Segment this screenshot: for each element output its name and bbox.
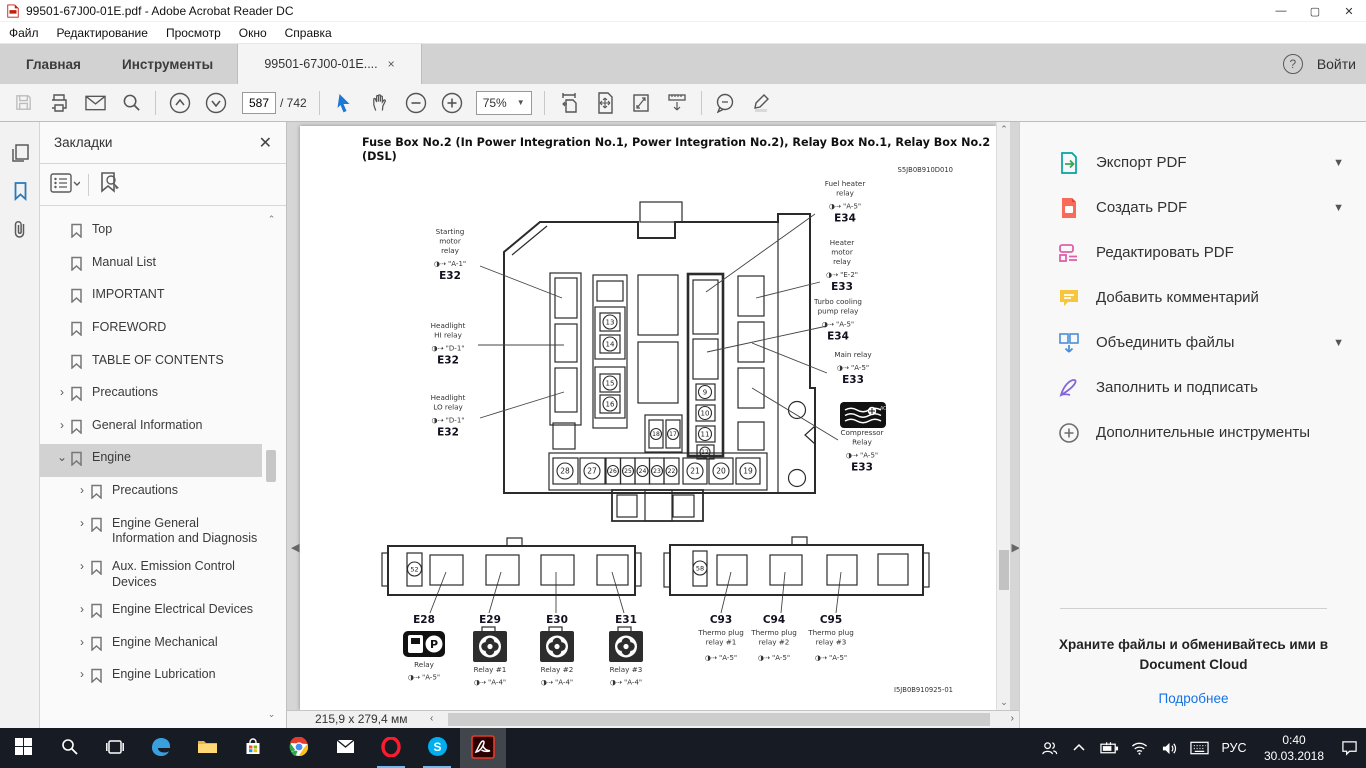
svg-text:◑⇢ "A-5": ◑⇢ "A-5" <box>705 654 737 662</box>
people-icon[interactable] <box>1036 728 1062 768</box>
find-current-bookmark-icon <box>97 171 123 195</box>
svg-text:◑⇢ "A-5": ◑⇢ "A-5" <box>408 674 440 682</box>
bookmark-item[interactable]: ›General Information <box>40 412 262 445</box>
svg-text:E32: E32 <box>437 355 459 367</box>
wifi-icon[interactable] <box>1126 728 1152 768</box>
highlight-button[interactable] <box>747 88 777 118</box>
document-cloud-promo: Храните файлы и обменивайтесь ими в Docu… <box>1020 608 1366 707</box>
bookmark-item-label: Engine Mechanical <box>108 635 258 651</box>
file-explorer-icon <box>197 738 218 758</box>
svg-text:22: 22 <box>668 468 676 475</box>
create-pdf-icon <box>1056 195 1082 221</box>
svg-text:19: 19 <box>743 467 753 476</box>
chevron-right-icon[interactable]: › <box>54 385 70 400</box>
svg-text:12: 12 <box>701 449 709 456</box>
touch-keyboard-icon[interactable] <box>1186 728 1212 768</box>
acrobat-taskbar-button[interactable] <box>460 728 506 768</box>
svg-text:E33: E33 <box>842 374 864 386</box>
tool-item-label: Экспорт PDF <box>1082 154 1333 171</box>
svg-text:58: 58 <box>696 564 704 572</box>
next-page-button[interactable] <box>201 88 231 118</box>
bookmark-flag-icon <box>70 320 88 341</box>
start-button[interactable] <box>0 728 46 768</box>
bookmark-flag-icon <box>90 635 108 656</box>
fuel-pump-relay-icon: P <box>403 631 445 657</box>
svg-text:16: 16 <box>606 401 615 409</box>
fill-sign-icon <box>1056 375 1082 401</box>
bookmark-item[interactable]: ›Engine General Information and Diagnosi… <box>40 510 262 553</box>
bookmark-item-label: Engine General Information and Diagnosis <box>108 516 258 547</box>
chrome-icon <box>289 737 309 760</box>
svg-text:17: 17 <box>669 431 677 438</box>
zoom-out-button[interactable] <box>401 88 431 118</box>
chevron-right-icon[interactable]: › <box>74 667 90 682</box>
svg-text:E32: E32 <box>437 427 459 439</box>
start-icon <box>15 738 32 758</box>
svg-text:Relay #3: Relay #3 <box>610 665 643 674</box>
chevron-right-icon[interactable]: › <box>74 602 90 617</box>
more-tools-icon <box>1056 420 1082 446</box>
show-hidden-icons-chevron[interactable] <box>1066 728 1092 768</box>
svg-text:Relay #2: Relay #2 <box>541 665 574 674</box>
svg-text:◑⇢ "A-4": ◑⇢ "A-4" <box>610 679 642 687</box>
previous-page-arrow[interactable]: ◀ <box>291 541 299 554</box>
scroll-right-icon[interactable]: › <box>1011 713 1014 724</box>
ruler-icon <box>666 92 688 114</box>
full-screen-button[interactable] <box>626 88 656 118</box>
svg-text:23: 23 <box>653 468 661 475</box>
svg-text:E34: E34 <box>827 331 849 343</box>
tool-item-export-pdf[interactable]: Экспорт PDF▼ <box>1020 140 1366 185</box>
chevron-down-icon[interactable]: ▼ <box>1333 337 1344 349</box>
svg-text:C93: C93 <box>710 614 732 626</box>
task-view-taskbar-button[interactable] <box>92 728 138 768</box>
acrobat-reader-window: 99501-67J00-01E.pdf - Adobe Acrobat Read… <box>0 0 1366 768</box>
svg-text:20: 20 <box>716 467 726 476</box>
edge-icon <box>150 736 172 761</box>
combine-files-icon <box>1056 330 1082 356</box>
svg-text:13: 13 <box>606 319 615 327</box>
page-thumbnails-icon <box>10 143 30 163</box>
expand-current-bookmark-button[interactable] <box>97 171 123 198</box>
bookmarks-tree: TopManual ListIMPORTANTFOREWORDTABLE OF … <box>40 208 262 728</box>
page-scrolling-icon <box>559 92 579 114</box>
language-indicator[interactable]: РУС <box>1216 741 1252 755</box>
svg-text:Relay: Relay <box>852 438 872 447</box>
bookmark-item-label: IMPORTANT <box>88 287 258 303</box>
svg-text:E32: E32 <box>439 270 461 282</box>
svg-text:Relay #1: Relay #1 <box>474 665 507 674</box>
svg-text:26: 26 <box>609 468 617 475</box>
tool-item-add-comment[interactable]: Добавить комментарий <box>1020 275 1366 320</box>
bookmark-icon <box>12 181 29 201</box>
help-icon[interactable]: ? <box>1283 54 1303 74</box>
tool-item-edit-pdf[interactable]: Редактировать PDF <box>1020 230 1366 275</box>
bookmark-flag-icon <box>90 483 108 504</box>
cloud-promo-line1: Храните файлы и обменивайтесь ими в <box>1059 637 1328 652</box>
full-screen-icon <box>631 92 651 114</box>
svg-text:relay #2: relay #2 <box>759 638 790 647</box>
scroll-up-icon[interactable]: ⌃ <box>265 214 278 225</box>
bookmark-item[interactable]: ›Aux. Emission Control Devices <box>40 553 262 596</box>
hand-icon <box>370 93 389 113</box>
scroll-up-icon[interactable]: ⌃ <box>997 124 1011 135</box>
svg-text:Heater: Heater <box>830 238 854 247</box>
skype-icon: S <box>427 736 448 760</box>
vertical-scroll-thumb[interactable] <box>999 550 1009 590</box>
main-toolbar: / 742 75%▼ <box>0 84 1366 122</box>
chevron-right-icon[interactable]: › <box>74 516 90 531</box>
cloud-promo-line2: Document Cloud <box>1140 657 1248 672</box>
clock[interactable]: 0:40 30.03.2018 <box>1256 732 1332 764</box>
hand-tool-button[interactable] <box>365 88 395 118</box>
tab-document-label: 99501-67J00-01E.... <box>264 57 377 71</box>
tool-item-label: Дополнительные инструменты <box>1082 424 1344 441</box>
svg-text:9: 9 <box>703 389 707 397</box>
svg-text:relay #3: relay #3 <box>816 638 847 647</box>
learn-more-link[interactable]: Подробнее <box>1020 691 1366 706</box>
previous-page-button[interactable] <box>165 88 195 118</box>
tool-item-more-tools[interactable]: Дополнительные инструменты <box>1020 410 1366 455</box>
bookmark-item-label: FOREWORD <box>88 320 258 336</box>
fan-relay-icons <box>473 627 643 662</box>
opera-taskbar-button[interactable] <box>368 728 414 768</box>
options-list-icon <box>50 172 80 194</box>
bookmark-flag-icon <box>70 353 88 374</box>
svg-text:Turbo cooling: Turbo cooling <box>813 297 862 306</box>
bookmark-item[interactable]: ⌄Engine <box>40 444 262 477</box>
tray-date: 30.03.2018 <box>1256 748 1332 764</box>
svg-text:◑⇢ "A-4": ◑⇢ "A-4" <box>474 679 506 687</box>
svg-text:Compressor: Compressor <box>840 428 883 437</box>
menu-item-0[interactable]: Файл <box>0 26 48 40</box>
attachments-button[interactable] <box>0 210 40 248</box>
document-status-bar: 215,9 x 279,4 мм ‹ › <box>287 710 1019 728</box>
acrobat-icon <box>471 735 495 762</box>
bookmark-options-button[interactable] <box>50 172 80 197</box>
bookmark-item-label: Engine <box>88 450 258 466</box>
page-down-icon <box>205 92 227 114</box>
tool-item-label: Создать PDF <box>1082 199 1333 216</box>
tool-item-fill-sign[interactable]: Заполнить и подписать <box>1020 365 1366 410</box>
svg-text:25: 25 <box>624 468 632 475</box>
menu-item-2[interactable]: Просмотр <box>157 26 230 40</box>
tab-tools[interactable]: Инструменты <box>110 44 225 84</box>
window-title: 99501-67J00-01E.pdf - Adobe Acrobat Read… <box>26 4 294 18</box>
bookmark-item[interactable]: ›Precautions <box>40 477 262 510</box>
svg-text:◑⇢ "A-5": ◑⇢ "A-5" <box>837 364 869 372</box>
zoom-in-button[interactable] <box>437 88 467 118</box>
content-area: Закладки ✕ TopManual ListIMPORTANTFOREWO… <box>0 122 1366 728</box>
file-explorer-taskbar-button[interactable] <box>184 728 230 768</box>
bookmark-flag-icon <box>70 418 88 439</box>
title-bar: 99501-67J00-01E.pdf - Adobe Acrobat Read… <box>0 0 1366 22</box>
tab-close-icon[interactable]: × <box>388 57 395 71</box>
mail-icon <box>336 739 355 757</box>
bookmark-item[interactable]: Manual List <box>40 249 262 282</box>
menu-bar: ФайлРедактированиеПросмотрОкноСправка <box>0 22 1366 44</box>
task-view-icon <box>106 739 124 758</box>
bookmark-flag-icon <box>70 287 88 308</box>
zoom-level-select[interactable]: 75%▼ <box>476 91 532 115</box>
zoom-caret-icon: ▼ <box>517 98 525 107</box>
svg-text:pump relay: pump relay <box>818 307 860 316</box>
svg-text:Starting: Starting <box>436 227 465 236</box>
bookmark-flag-icon <box>70 450 88 471</box>
search-button[interactable] <box>116 88 146 118</box>
svg-text:E31: E31 <box>615 614 637 626</box>
bookmarks-scroll-thumb[interactable] <box>266 450 276 482</box>
mail-taskbar-button[interactable] <box>322 728 368 768</box>
email-icon <box>85 95 106 111</box>
svg-text:C95: C95 <box>820 614 842 626</box>
svg-text:relay #1: relay #1 <box>706 638 737 647</box>
chevron-down-icon[interactable]: ▼ <box>1333 202 1344 214</box>
bookmark-item[interactable]: TABLE OF CONTENTS <box>40 347 262 380</box>
tool-item-label: Добавить комментарий <box>1082 289 1344 306</box>
volume-icon[interactable] <box>1156 728 1182 768</box>
doc-code-top: S5JB0B910D010 <box>898 166 953 174</box>
svg-text:HI relay: HI relay <box>434 331 462 340</box>
bookmark-item-label: Aux. Emission Control Devices <box>108 559 258 590</box>
save-button[interactable] <box>8 88 38 118</box>
svg-text:◑⇢ "A-5": ◑⇢ "A-5" <box>815 654 847 662</box>
fit-page-icon <box>595 92 615 114</box>
svg-text:Headlight: Headlight <box>431 321 466 330</box>
store-taskbar-button[interactable] <box>230 728 276 768</box>
maximize-button[interactable]: ▢ <box>1298 0 1332 22</box>
svg-text:21: 21 <box>690 467 700 476</box>
save-icon <box>14 93 33 112</box>
horizontal-scrollbar[interactable]: ‹ › <box>430 711 1014 728</box>
svg-text:relay: relay <box>836 189 855 198</box>
bookmark-item-label: Top <box>88 222 258 238</box>
minimize-button[interactable]: — <box>1264 0 1298 22</box>
svg-text:Thermo plug: Thermo plug <box>697 628 744 637</box>
svg-text:Main relay: Main relay <box>834 350 872 359</box>
bookmark-item-label: Precautions <box>88 385 258 401</box>
bookmark-flag-icon <box>90 602 108 623</box>
print-button[interactable] <box>44 88 74 118</box>
comment-button[interactable] <box>711 88 741 118</box>
svg-text:15: 15 <box>606 380 615 388</box>
svg-text:◑⇢ "A-5": ◑⇢ "A-5" <box>846 452 878 460</box>
search-icon <box>122 93 141 112</box>
bookmark-item-label: Engine Lubrication <box>108 667 258 683</box>
svg-text:24: 24 <box>639 468 647 475</box>
search-taskbar-button[interactable] <box>46 728 92 768</box>
battery-icon[interactable] <box>1096 728 1122 768</box>
svg-text:◑⇢ "D-1": ◑⇢ "D-1" <box>431 417 464 425</box>
svg-text:C94: C94 <box>763 614 785 626</box>
page-dimensions-label: 215,9 x 279,4 мм <box>315 712 408 726</box>
svg-text:relay: relay <box>441 246 460 255</box>
tray-time: 0:40 <box>1256 732 1332 748</box>
chevron-right-icon[interactable]: › <box>74 483 90 498</box>
svg-text:E28: E28 <box>413 614 435 626</box>
comment-bubble-icon <box>715 93 737 113</box>
svg-text:E29: E29 <box>479 614 501 626</box>
bookmarks-close-icon[interactable]: ✕ <box>259 133 272 153</box>
svg-text:LO relay: LO relay <box>433 403 463 412</box>
svg-text:AC: AC <box>879 406 887 412</box>
bookmarks-panel-button[interactable] <box>0 172 40 210</box>
measure-tool-button[interactable] <box>662 88 692 118</box>
tab-bar: Главная Инструменты 99501-67J00-01E.... … <box>0 44 1366 84</box>
chevron-right-icon[interactable]: › <box>74 559 90 574</box>
chevron-right-icon[interactable]: › <box>54 418 70 433</box>
bookmark-flag-icon <box>70 222 88 243</box>
svg-text:E30: E30 <box>546 614 568 626</box>
diagram-title-line2: (DSL) <box>362 150 397 163</box>
menu-item-3[interactable]: Окно <box>230 26 276 40</box>
edit-pdf-icon <box>1056 240 1082 266</box>
svg-text:Thermo plug: Thermo plug <box>807 628 854 637</box>
svg-text:Headlight: Headlight <box>431 393 466 402</box>
page-up-icon <box>169 92 191 114</box>
svg-text:11: 11 <box>701 431 710 439</box>
edge-taskbar-button[interactable] <box>138 728 184 768</box>
svg-text:Fuel heater: Fuel heater <box>825 179 866 188</box>
bookmark-flag-icon <box>90 559 108 580</box>
bookmark-item[interactable]: FOREWORD <box>40 314 262 347</box>
search-icon <box>61 738 78 758</box>
opera-icon <box>381 737 401 760</box>
paperclip-icon <box>11 219 29 239</box>
svg-text:P: P <box>430 638 438 651</box>
svg-text:relay: relay <box>833 257 852 266</box>
svg-text:18: 18 <box>652 431 660 438</box>
bookmark-item[interactable]: ›Engine Mechanical <box>40 629 262 662</box>
menu-item-1[interactable]: Редактирование <box>48 26 157 40</box>
page-thumbnails-button[interactable] <box>0 134 40 172</box>
scrolling-mode-button[interactable] <box>554 88 584 118</box>
svg-text:E34: E34 <box>834 213 856 225</box>
svg-text:27: 27 <box>587 467 597 476</box>
bookmarks-scrollbar[interactable]: ⌃ ⌄ <box>265 214 278 720</box>
page-total-label: / 742 <box>280 96 307 110</box>
store-icon <box>244 738 262 759</box>
bookmark-item[interactable]: ›Engine Lubrication <box>40 661 262 694</box>
bookmark-item-label: Precautions <box>108 483 258 499</box>
svg-text:Thermo plug: Thermo plug <box>750 628 797 637</box>
cursor-icon <box>335 93 352 113</box>
svg-text:◑⇢ "A-4": ◑⇢ "A-4" <box>541 679 573 687</box>
windows-taskbar: S РУС 0:40 30.03.2018 <box>0 728 1366 768</box>
horizontal-scroll-thumb[interactable] <box>448 713 990 726</box>
add-comment-icon <box>1056 285 1082 311</box>
export-pdf-icon <box>1056 150 1082 176</box>
action-center-icon[interactable] <box>1336 728 1362 768</box>
svg-text:S: S <box>433 740 441 754</box>
fuse-box-diagram: Fuse Box No.2 (In Power Integration No.1… <box>300 126 996 710</box>
tool-item-create-pdf[interactable]: Создать PDF▼ <box>1020 185 1366 230</box>
bookmarks-panel-title: Закладки <box>54 135 259 150</box>
svg-text:motor: motor <box>439 237 461 246</box>
ac-compressor-icon: AC <box>840 402 887 428</box>
svg-text:E33: E33 <box>831 281 853 293</box>
bookmark-item-label: Engine Electrical Devices <box>108 602 258 618</box>
svg-text:28: 28 <box>560 467 570 476</box>
tool-item-label: Редактировать PDF <box>1082 244 1344 261</box>
bookmark-flag-icon <box>70 385 88 406</box>
tool-item-label: Объединить файлы <box>1082 334 1333 351</box>
highlighter-icon <box>751 93 773 113</box>
email-button[interactable] <box>80 88 110 118</box>
doc-code-bottom: I5JB0B910925-01 <box>894 686 953 694</box>
svg-text:E33: E33 <box>851 462 873 474</box>
tab-home[interactable]: Главная <box>14 44 93 84</box>
svg-text:motor: motor <box>831 248 853 257</box>
acrobat-pdf-icon <box>6 4 20 18</box>
bookmark-item[interactable]: IMPORTANT <box>40 281 262 314</box>
svg-text:◑⇢ "A-5": ◑⇢ "A-5" <box>829 203 861 211</box>
select-tool-button[interactable] <box>329 88 359 118</box>
bookmark-flag-icon <box>70 255 88 276</box>
bookmark-item-label: General Information <box>88 418 258 434</box>
bookmark-item-label: TABLE OF CONTENTS <box>88 353 258 369</box>
bookmark-flag-icon <box>90 516 108 537</box>
chevron-down-icon[interactable]: ▼ <box>1333 157 1344 169</box>
fit-page-button[interactable] <box>590 88 620 118</box>
tab-document[interactable]: 99501-67J00-01E.... × <box>237 44 422 84</box>
scroll-down-icon[interactable]: ⌄ <box>265 709 278 720</box>
page-number-input[interactable] <box>242 92 276 114</box>
bookmark-item[interactable]: Top <box>40 216 262 249</box>
navigation-pane-strip <box>0 122 40 728</box>
document-area: Fuse Box No.2 (In Power Integration No.1… <box>287 122 1019 728</box>
scroll-down-icon[interactable]: ⌄ <box>997 697 1011 708</box>
tools-panel: Экспорт PDF▼Создать PDF▼Редактировать PD… <box>1019 122 1366 728</box>
chrome-taskbar-button[interactable] <box>276 728 322 768</box>
svg-text:10: 10 <box>701 410 710 418</box>
bookmark-flag-icon <box>90 667 108 688</box>
tool-item-combine-files[interactable]: Объединить файлы▼ <box>1020 320 1366 365</box>
svg-text:◑⇢ "E-2": ◑⇢ "E-2" <box>826 271 858 279</box>
svg-text:14: 14 <box>606 341 615 349</box>
bookmark-item[interactable]: ›Engine Electrical Devices <box>40 596 262 629</box>
svg-text:◑⇢ "D-1": ◑⇢ "D-1" <box>431 345 464 353</box>
sign-in-button[interactable]: Войти <box>1317 56 1356 72</box>
zoom-out-icon <box>405 92 427 114</box>
scroll-left-icon[interactable]: ‹ <box>430 713 433 724</box>
bookmark-item[interactable]: ›Precautions <box>40 379 262 412</box>
vertical-scrollbar[interactable]: ⌃ ⌄ <box>996 122 1010 710</box>
pdf-page: Fuse Box No.2 (In Power Integration No.1… <box>300 126 996 710</box>
svg-text:◑⇢ "A-5": ◑⇢ "A-5" <box>822 321 854 329</box>
svg-text:Relay: Relay <box>414 660 434 669</box>
skype-taskbar-button[interactable]: S <box>414 728 460 768</box>
zoom-level-value: 75% <box>483 96 507 110</box>
diagram-title-line1: Fuse Box No.2 (In Power Integration No.1… <box>362 136 990 149</box>
bookmarks-panel: Закладки ✕ TopManual ListIMPORTANTFOREWO… <box>40 122 287 728</box>
svg-text:◑⇢ "A-5": ◑⇢ "A-5" <box>758 654 790 662</box>
close-button[interactable]: ✕ <box>1332 0 1366 22</box>
bookmark-item-label: Manual List <box>88 255 258 271</box>
chevron-down-icon[interactable]: ⌄ <box>54 450 70 465</box>
svg-text:52: 52 <box>410 565 418 573</box>
menu-item-4[interactable]: Справка <box>276 26 341 40</box>
svg-text:◑⇢ "A-1": ◑⇢ "A-1" <box>434 260 466 268</box>
tool-item-label: Заполнить и подписать <box>1082 379 1344 396</box>
chevron-right-icon[interactable]: › <box>74 635 90 650</box>
zoom-in-icon <box>441 92 463 114</box>
print-icon <box>49 93 69 113</box>
